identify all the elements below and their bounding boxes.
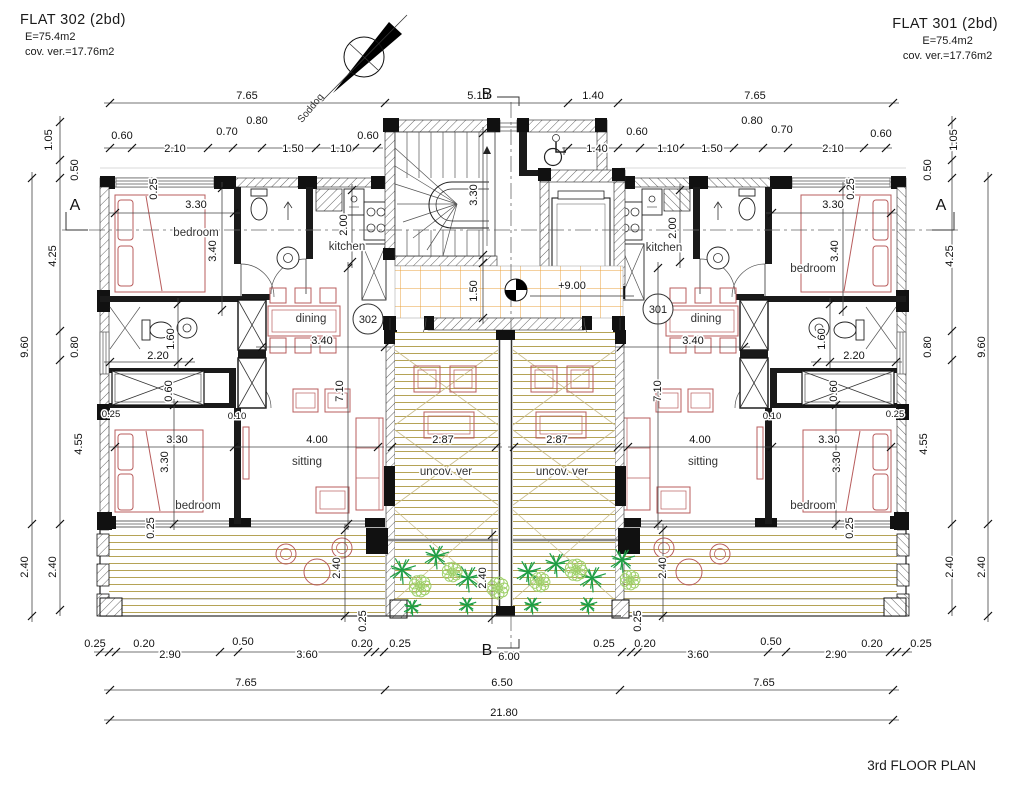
dim-label: 3.40 xyxy=(829,240,841,261)
dim-label: 3.40 xyxy=(207,240,219,261)
dim-label: 0.50 xyxy=(232,636,253,648)
dim-label: 3.40 xyxy=(682,335,703,347)
dim-label: 2.40 xyxy=(657,557,669,578)
section-marker-b: B xyxy=(482,86,493,103)
dim-label: 2.40 xyxy=(477,567,489,588)
dim-label: 7.65 xyxy=(744,90,765,102)
dim-label: 2.90 xyxy=(159,649,180,661)
dim-label: 0.60 xyxy=(870,128,891,140)
north-arrow-icon xyxy=(324,15,407,99)
dim-label: 3.30 xyxy=(822,199,843,211)
room-label-kitchen: kitchen xyxy=(646,242,682,254)
room-tag-302: 302 xyxy=(359,314,377,326)
dim-label: 2.87 xyxy=(546,434,567,446)
dim-label: 4.55 xyxy=(918,433,930,454)
dim-label: 0.60 xyxy=(111,130,132,142)
dim-label: 2.40 xyxy=(47,556,59,577)
dim-label: 4.25 xyxy=(47,245,59,266)
dim-label: 3.40 xyxy=(311,335,332,347)
dim-label: 0.25 xyxy=(845,178,857,199)
dim-label: 1.10 xyxy=(657,143,678,155)
dim-label: 3.30 xyxy=(185,199,206,211)
room-label-bedroom: bedroom xyxy=(175,500,220,512)
room-label-bedroom: bedroom xyxy=(790,500,835,512)
dim-label: 2.10 xyxy=(822,143,843,155)
dim-label: 0.25 xyxy=(145,517,157,538)
dim-label: 1.40 xyxy=(586,143,607,155)
dim-label: 0.25 xyxy=(389,638,410,650)
dim-label: 0.80 xyxy=(69,336,81,357)
dim-label: 2.10 xyxy=(164,143,185,155)
dim-label: 1.05 xyxy=(948,129,960,150)
level-value: +9.00 xyxy=(558,280,586,292)
room-label-bedroom: bedroom xyxy=(173,227,218,239)
dim-label: 2.00 xyxy=(338,214,350,235)
dim-label: 1.50 xyxy=(468,280,480,301)
dim-label: 1.40 xyxy=(582,90,603,102)
section-marker-b: B xyxy=(482,642,493,659)
dim-label: 0.25 xyxy=(844,517,856,538)
dim-label: 0.25 xyxy=(148,178,160,199)
dim-label: 0.20 xyxy=(133,638,154,650)
dim-label: 0.60 xyxy=(828,380,840,401)
dim-label: 1.60 xyxy=(816,328,828,349)
dim-label: 0.25 xyxy=(632,610,644,631)
dim-label: 0.25 xyxy=(593,638,614,650)
room-label-kitchen: kitchen xyxy=(329,241,365,253)
dim-label: 0.25 xyxy=(357,610,369,631)
dim-label: 6.00 xyxy=(498,651,519,663)
room-tag-301: 301 xyxy=(649,304,667,316)
dim-label: 3.30 xyxy=(159,451,171,472)
room-label-uncovered-veranda: uncov. ver xyxy=(536,466,588,478)
section-marker-a: A xyxy=(70,197,81,214)
dim-label: 3.60 xyxy=(296,649,317,661)
dim-label: 0.25 xyxy=(84,638,105,650)
dim-label: 0.50 xyxy=(69,159,81,180)
dim-label: 0.60 xyxy=(626,126,647,138)
dim-label: 0.50 xyxy=(922,159,934,180)
dim-label: 0.20 xyxy=(634,638,655,650)
room-label-sitting: sitting xyxy=(292,456,322,468)
dim-label: 0.80 xyxy=(741,115,762,127)
dim-label: 7.10 xyxy=(652,380,664,401)
floor-plan-drawing: 7.655.101.407.650.602.100.700.801.501.10… xyxy=(0,0,1024,794)
dim-label: 3.30 xyxy=(166,434,187,446)
room-label-uncovered-veranda: uncov. ver xyxy=(420,466,472,478)
dim-label: 4.55 xyxy=(73,433,85,454)
dim-label: 2.00 xyxy=(667,217,679,238)
dim-label: 7.10 xyxy=(334,380,346,401)
dim-label: 0.25 xyxy=(886,409,905,420)
dim-label: 7.65 xyxy=(236,90,257,102)
dim-label: 4.25 xyxy=(944,245,956,266)
dim-label: 2.40 xyxy=(944,556,956,577)
dim-label: 1.50 xyxy=(701,143,722,155)
dim-label: 1.10 xyxy=(330,143,351,155)
dim-label: 0.10 xyxy=(228,411,247,422)
dim-label: 0.20 xyxy=(351,638,372,650)
dim-label: 0.10 xyxy=(763,411,782,422)
dim-label: 7.65 xyxy=(753,677,774,689)
room-label-dining: dining xyxy=(691,313,722,325)
dim-label: 4.00 xyxy=(306,434,327,446)
room-label-bedroom: bedroom xyxy=(790,263,835,275)
dim-label: 0.20 xyxy=(861,638,882,650)
dim-label: 2.87 xyxy=(432,434,453,446)
dim-label: 2.20 xyxy=(843,350,864,362)
dim-label: 0.70 xyxy=(771,124,792,136)
dim-label: 0.25 xyxy=(102,409,121,420)
dim-label: 7.65 xyxy=(235,677,256,689)
dim-label: 2.20 xyxy=(147,350,168,362)
dim-label: 3.30 xyxy=(831,451,843,472)
dim-label: 0.60 xyxy=(163,380,175,401)
dim-label: 3.30 xyxy=(468,184,480,205)
dim-label: 2.90 xyxy=(825,649,846,661)
dim-label: 3.30 xyxy=(818,434,839,446)
dim-label: 4.00 xyxy=(689,434,710,446)
dim-label: 0.80 xyxy=(246,115,267,127)
dim-label: 2.40 xyxy=(976,556,988,577)
dim-label: 0.70 xyxy=(216,126,237,138)
staircase xyxy=(395,132,495,256)
dim-label: 9.60 xyxy=(976,336,988,357)
room-label-dining: dining xyxy=(296,313,327,325)
north-arrow-label: Soddog xyxy=(296,92,327,125)
dim-label: 0.50 xyxy=(760,636,781,648)
dim-label: 1.60 xyxy=(165,328,177,349)
dim-label: 21.80 xyxy=(490,707,518,719)
dim-label: 9.60 xyxy=(19,336,31,357)
wheelchair-icon xyxy=(545,135,567,166)
dim-label: 0.60 xyxy=(357,130,378,142)
room-label-sitting: sitting xyxy=(688,456,718,468)
section-marker-a: A xyxy=(936,197,947,214)
dim-label: 2.40 xyxy=(331,557,343,578)
dim-label: 1.50 xyxy=(282,143,303,155)
dim-label: 6.50 xyxy=(491,677,512,689)
dim-label: 3.60 xyxy=(687,649,708,661)
floor-plan-canvas: FLAT 302 (2bd) E=75.4m2 cov. ver.=17.76m… xyxy=(0,0,1024,794)
dim-label: 2.40 xyxy=(19,556,31,577)
dim-label: 0.25 xyxy=(910,638,931,650)
dim-label: 0.80 xyxy=(922,336,934,357)
dim-label: 1.05 xyxy=(43,129,55,150)
